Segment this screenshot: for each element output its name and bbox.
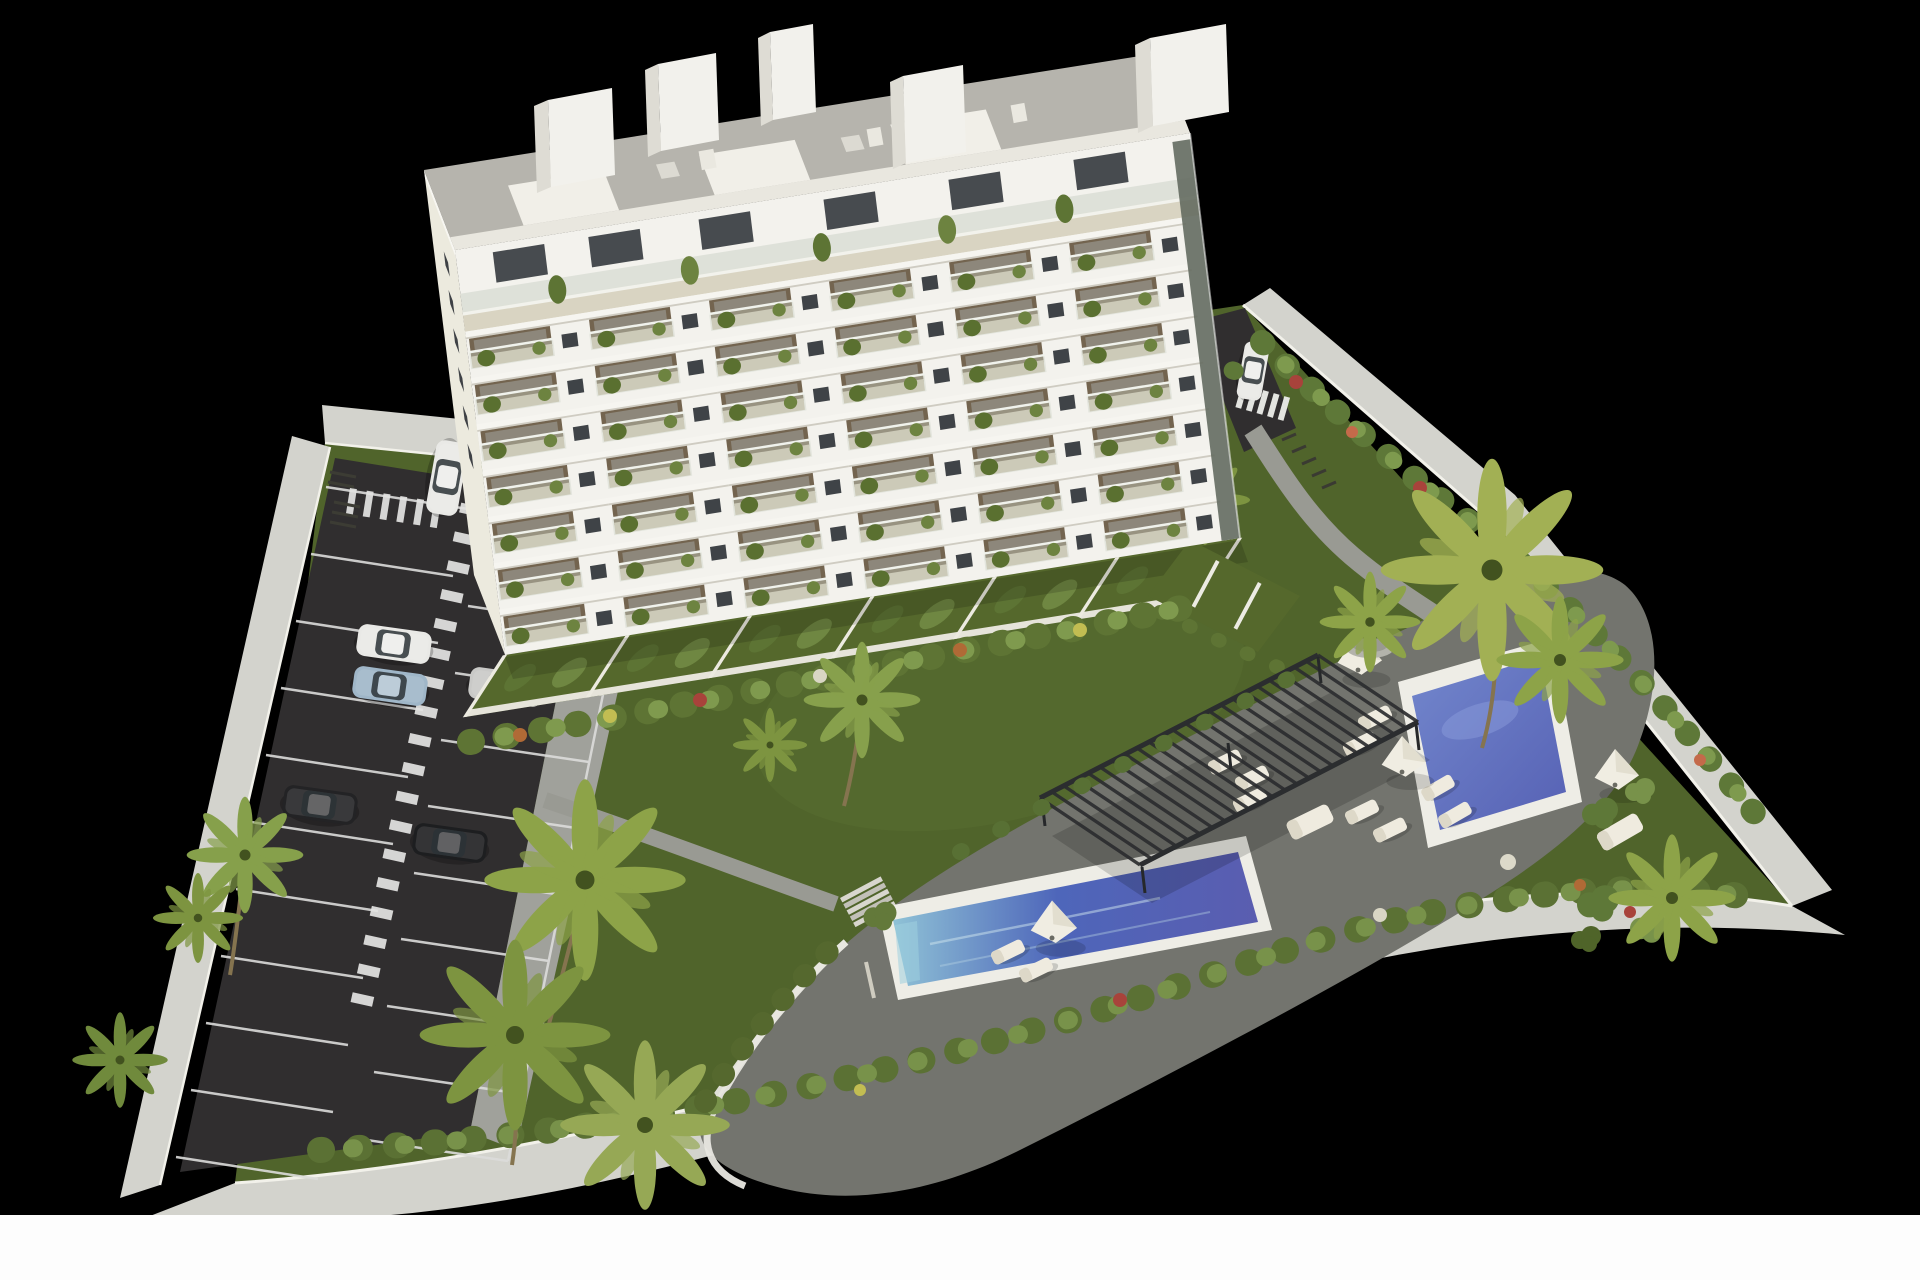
palm-tree — [420, 940, 611, 1131]
architectural-render — [0, 0, 1920, 1280]
render-canvas — [0, 0, 1920, 1280]
palm-tree — [1608, 834, 1735, 961]
roof-tower — [770, 24, 816, 120]
palm-tree — [72, 1012, 167, 1107]
palm-tree — [560, 1040, 730, 1210]
palm-tree — [153, 873, 243, 963]
roof-tower-side — [534, 100, 551, 193]
planter-palm — [1320, 572, 1421, 673]
foreground-band — [0, 1215, 1920, 1280]
palm-tree — [804, 642, 921, 759]
palm-tree — [1496, 596, 1623, 723]
roof-tower — [658, 53, 719, 151]
roof-tower — [1150, 24, 1229, 126]
roof-tower — [548, 88, 615, 187]
palm-tree — [733, 708, 807, 782]
roof-tower-side — [1135, 38, 1153, 133]
roof-tower — [903, 65, 966, 163]
